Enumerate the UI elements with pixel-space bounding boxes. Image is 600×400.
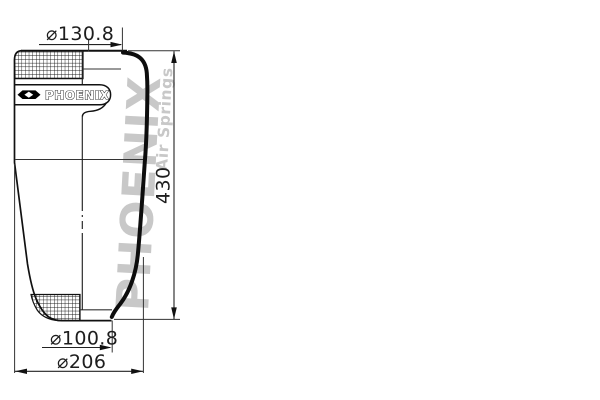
brand-plate-label: PHOENIX: [45, 88, 110, 102]
dim-label-bottom-diameter: ⌀100.8: [50, 328, 118, 350]
bottom-bead-mesh: [31, 295, 80, 321]
arrow-up-icon: [171, 51, 177, 63]
arrow-down-icon: [171, 307, 177, 319]
dimension-bottom-diameter: ⌀100.8: [42, 321, 118, 353]
dimension-top-diameter: ⌀130.8: [39, 23, 122, 52]
dim-label-height: 430: [153, 167, 175, 204]
arrow-right-icon: [131, 369, 143, 374]
brand-plate: PHOENIX: [15, 85, 111, 117]
dim-label-top-diameter: ⌀130.8: [46, 23, 114, 45]
top-bead-mesh: [15, 51, 84, 79]
arrow-left-icon: [15, 369, 27, 374]
air-spring-technical-drawing: PHOENIX Air Springs PHO: [0, 0, 600, 400]
dim-label-max-diameter: ⌀206: [57, 351, 106, 373]
drawing-canvas: PHOENIX Air Springs PHO: [0, 0, 600, 400]
